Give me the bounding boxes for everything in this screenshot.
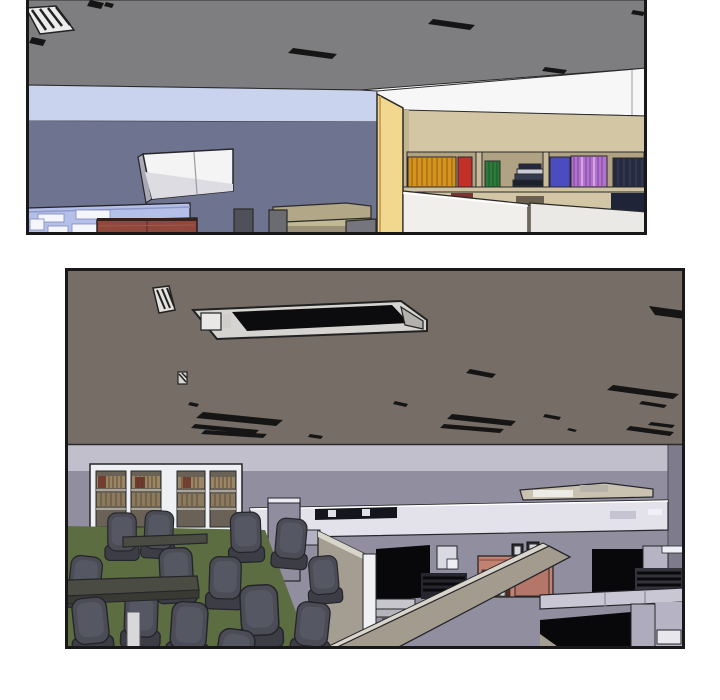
monitor-back [362,509,370,516]
book-red [458,157,472,187]
books-navy [613,158,644,187]
table-pedestal [127,612,140,649]
books-green [485,161,500,187]
panel-bottom-illustration [65,268,685,649]
panel-top-illustration [26,0,647,235]
small-hatch-vent [178,372,187,384]
books-orange [408,157,456,187]
comic-panel-bottom [65,268,685,649]
side-table [234,209,253,235]
books-violet [571,156,607,187]
office-chair [205,556,245,610]
office-chair [227,512,265,563]
monitor-back [328,510,336,517]
comic-panel-top [26,0,647,235]
monitor-strip [315,507,397,520]
clerestory-window-band [26,85,377,122]
shelf-divider [543,152,549,187]
shelf-board [403,187,647,192]
shelf-divider [476,152,482,187]
book-blue [550,157,570,187]
